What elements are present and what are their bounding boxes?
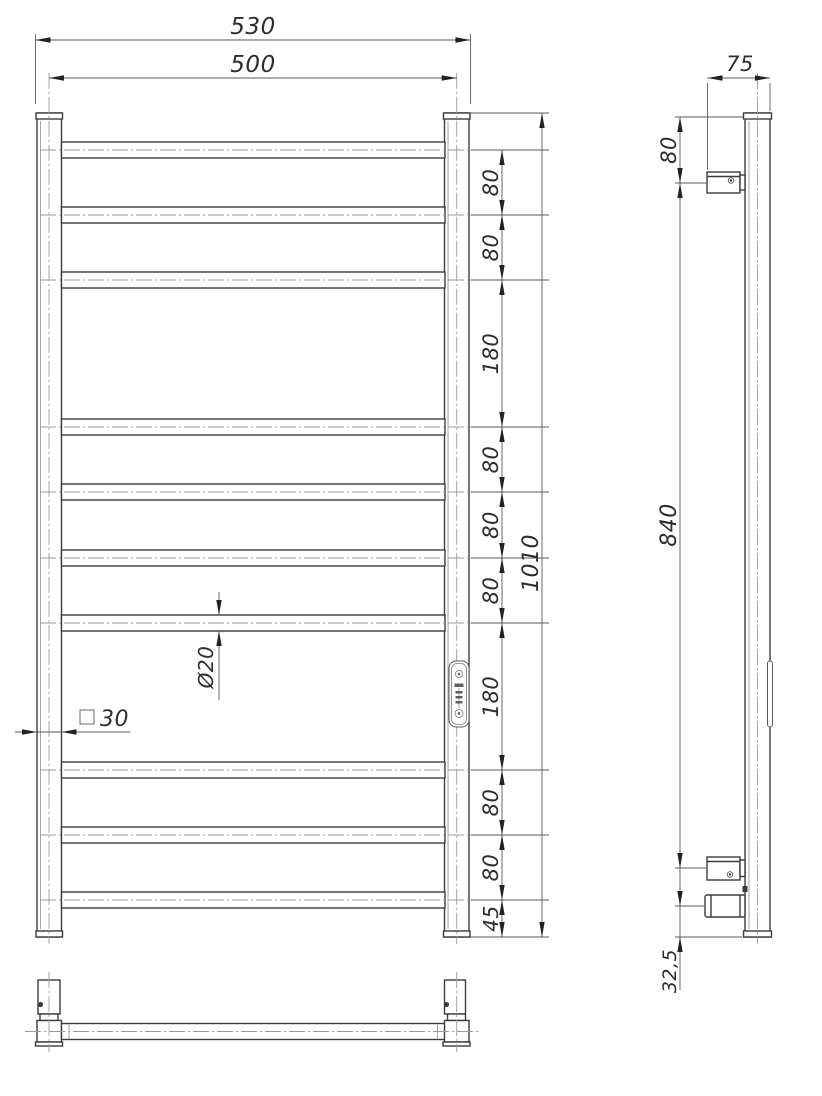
dim-label-overall-height: 1010 (519, 534, 544, 592)
drawing-canvas: 530 500 80 80 180 (0, 0, 822, 1096)
dim-label-spacing-1: 80 (479, 169, 503, 197)
dim-label-centers-width: 500 (230, 52, 275, 78)
square-symbol (80, 710, 94, 724)
bracket-screw-icon (38, 1002, 43, 1007)
heater-boss (705, 895, 745, 917)
front-centerlines (40, 73, 470, 944)
dim-post-square: 30 (15, 707, 130, 735)
dim-label-depth: 75 (726, 52, 754, 76)
side-view: 75 80 840 32,5 (657, 52, 773, 993)
dim-label-bottom-fitting-offset: 32,5 (659, 949, 681, 993)
dim-label-spacing-6: 80 (479, 577, 503, 605)
dim-label-spacing-3: 180 (479, 333, 503, 375)
dim-label-rung-diameter: Ø20 (194, 646, 218, 690)
side-badge-edge (768, 661, 773, 727)
dim-label-overall-width: 530 (230, 14, 275, 40)
dim-label-spacing-2: 80 (479, 234, 503, 262)
technical-drawing: 530 500 80 80 180 (0, 0, 822, 1096)
dim-840: 840 (657, 183, 706, 868)
dim-label-bracket-span: 840 (657, 503, 682, 547)
dim-label-spacing-5: 80 (479, 511, 503, 539)
rungs (62, 142, 446, 908)
dim-label-top-bracket-offset: 80 (657, 136, 681, 164)
dim-label-spacing-7: 180 (479, 676, 503, 718)
side-post (744, 73, 772, 944)
bottom-right-assembly (443, 980, 470, 1046)
wall-bracket-bottom (707, 857, 748, 892)
front-view (36, 73, 470, 944)
brand-logo-badge (449, 661, 469, 727)
bottom-left-assembly (36, 980, 63, 1046)
dim-height-chain: 80 80 180 80 80 80 180 80 80 45 (471, 113, 550, 937)
dim-rung-diameter: Ø20 (194, 592, 222, 700)
dim-label-spacing-9: 80 (479, 854, 503, 882)
dim-label-spacing-8: 80 (479, 789, 503, 817)
set-screw (743, 886, 748, 892)
dim-500: 500 (49, 52, 457, 81)
bracket-screw-icon (444, 1002, 449, 1007)
dim-label-spacing-4: 80 (479, 446, 503, 474)
dim-1010: 1010 (519, 113, 545, 937)
dim-label-post-square: 30 (100, 707, 129, 732)
bottom-view (25, 972, 481, 1052)
dim-label-spacing-10: 45 (479, 905, 503, 931)
wall-bracket-top (707, 172, 745, 193)
